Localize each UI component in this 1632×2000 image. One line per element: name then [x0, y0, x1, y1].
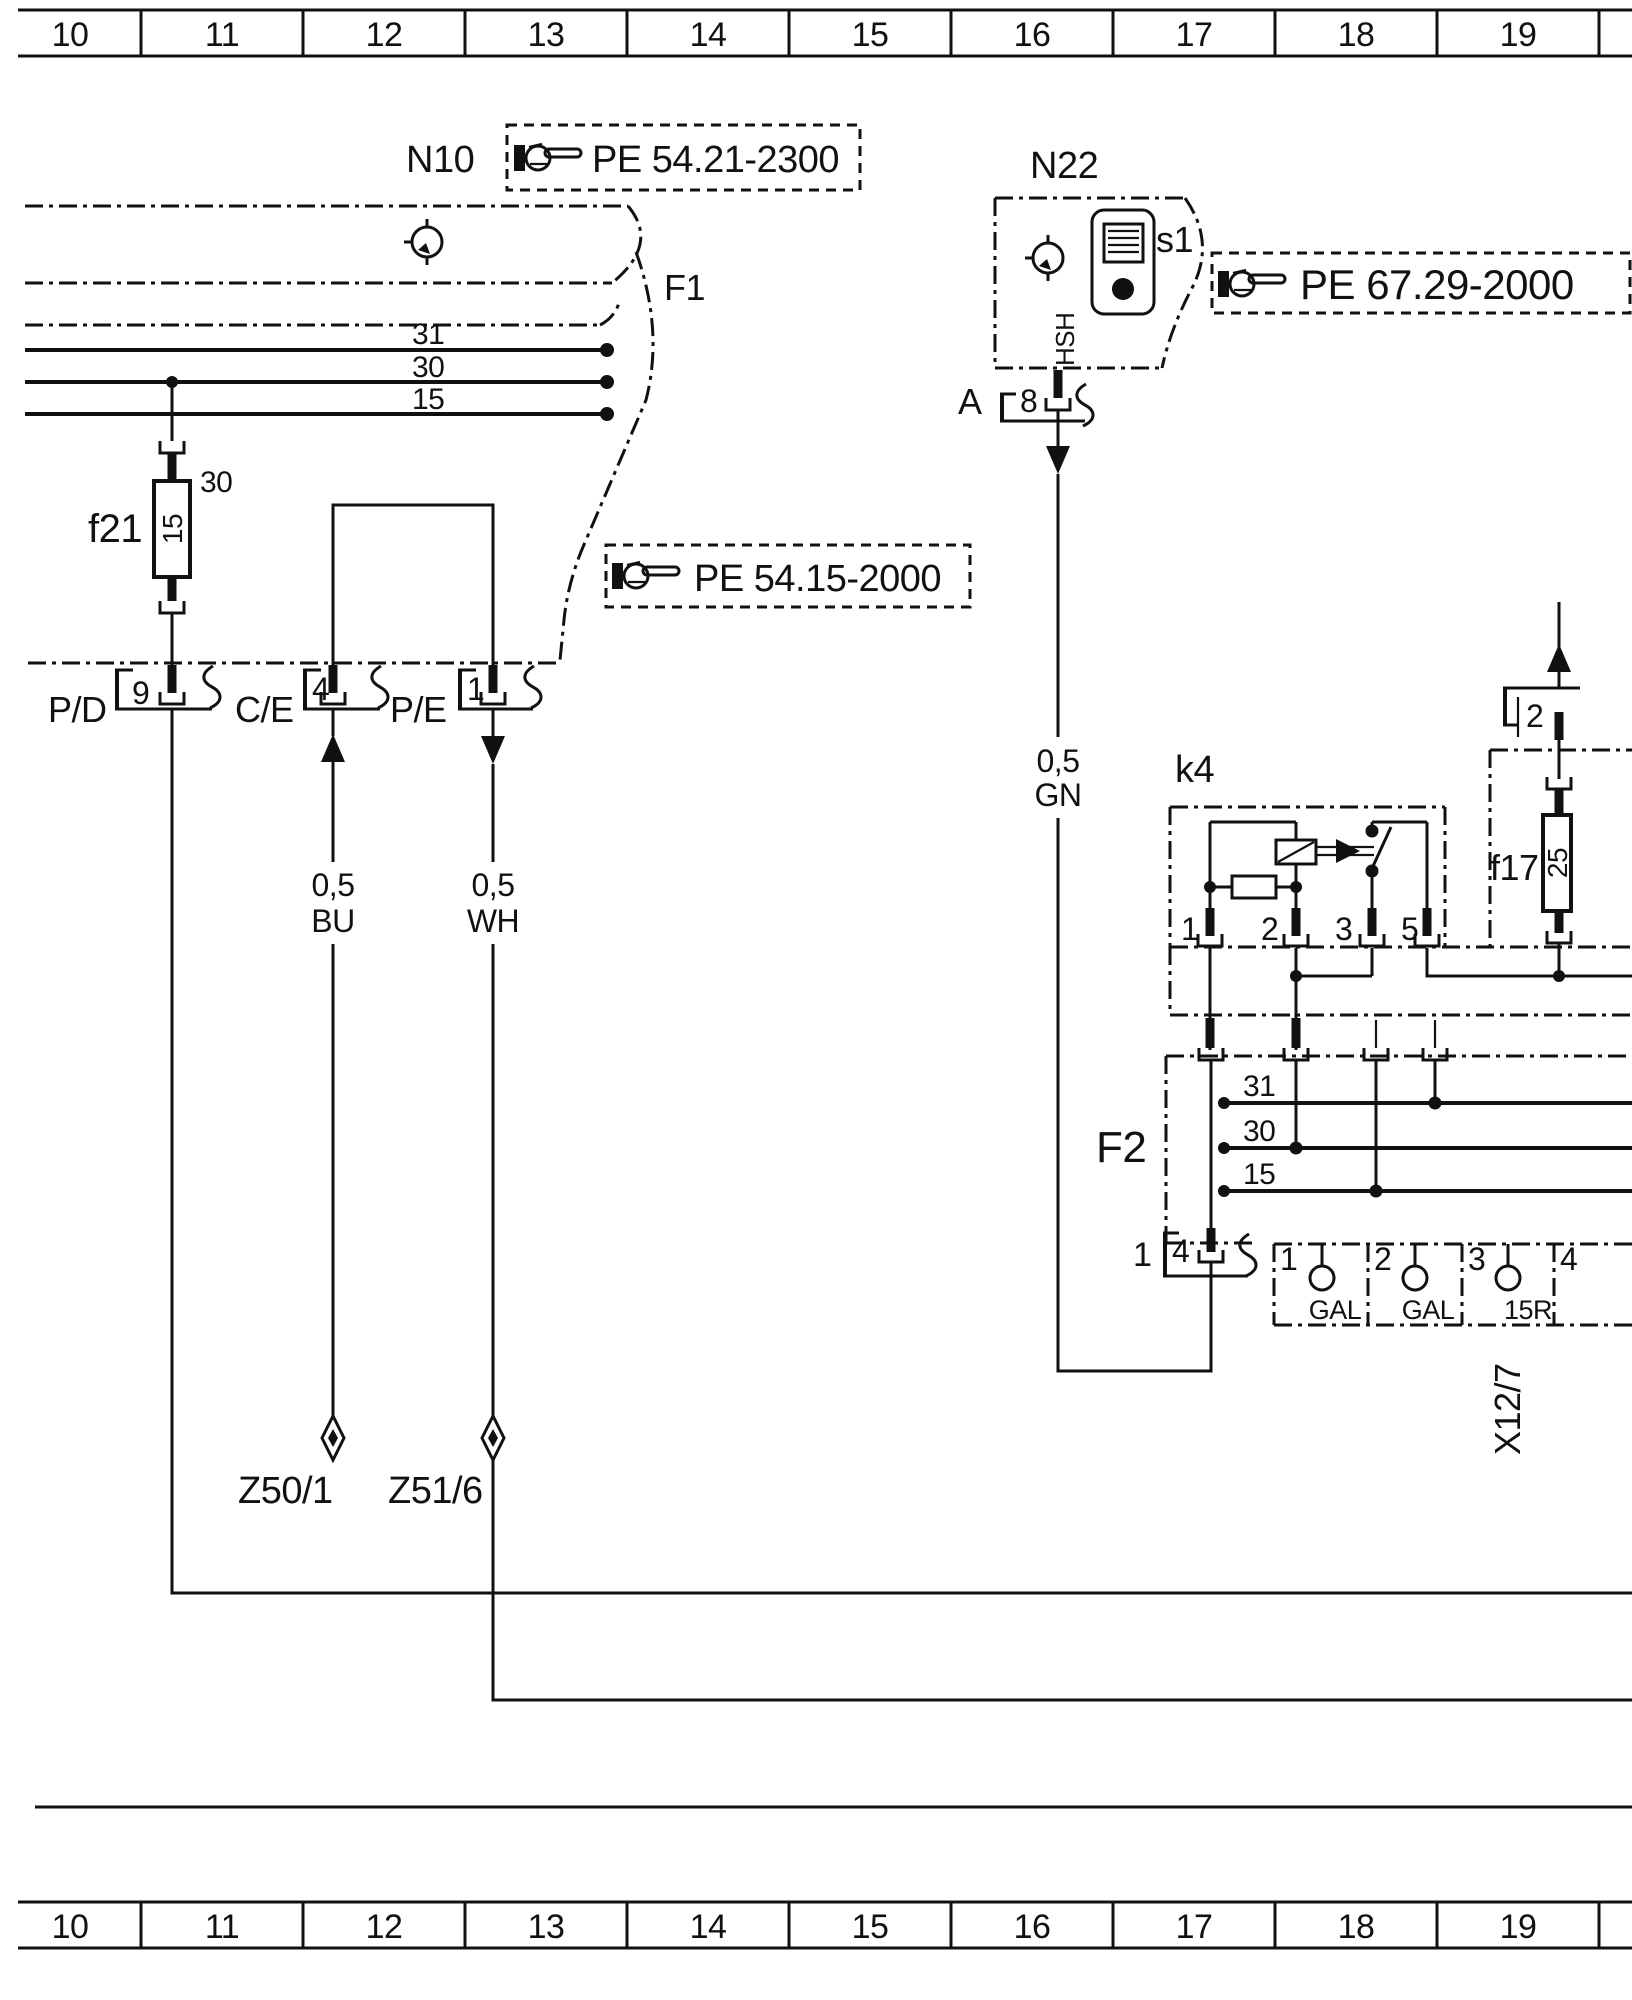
f2-label: F2	[1096, 1123, 1146, 1172]
splice-z51-6-label: Z51/6	[388, 1470, 483, 1512]
f2-bus-30-label: 30	[1243, 1115, 1275, 1148]
pointing-hand-icon	[514, 144, 581, 171]
x127-func-1: GAL	[1309, 1295, 1362, 1325]
wire-pd-run	[172, 709, 1632, 1593]
x127-pin-2: 2	[1374, 1241, 1391, 1277]
fuse-f21: 15 30 f21	[88, 382, 232, 692]
wire-bu: 0,5 BU Z50/1	[238, 709, 355, 1512]
separation-squiggle	[372, 666, 388, 708]
contact-icon	[1046, 398, 1070, 410]
relay-resistor	[1232, 876, 1276, 898]
fuse-box-f2: F2 31 30 15 1 4	[1096, 1018, 1632, 1276]
f21-rating: 15	[157, 514, 188, 544]
pe-label: P/E	[390, 689, 447, 730]
reference-pe-5415: PE 54.15-2000	[606, 545, 970, 607]
wire-bu-color: BU	[311, 903, 354, 939]
actuation-arrow	[1336, 839, 1360, 863]
ruler-cell: 16	[1014, 1908, 1051, 1946]
contact-icon	[1423, 1048, 1447, 1060]
ruler-cell: 11	[205, 16, 239, 54]
n22-device-icon	[1025, 235, 1063, 281]
reference-pe-6729: PE 67.29-2000	[1212, 253, 1630, 313]
contact-icon	[160, 692, 184, 704]
pd-label: P/D	[48, 689, 107, 730]
ruler-cell: 19	[1500, 1908, 1537, 1946]
bus-15-label: 15	[412, 383, 444, 416]
bottom-ruler: 10 11 12 13 14 15 16 17 18 19	[18, 1902, 1632, 1948]
f2-exit-outer: 1	[1133, 1236, 1151, 1274]
direction-arrow-down	[1046, 446, 1070, 474]
ruler-cell: 14	[690, 16, 727, 54]
socket-icon	[1496, 1266, 1520, 1290]
reference-pe-5421: PE 54.21-2300	[507, 125, 860, 190]
jumper-loop	[333, 505, 493, 665]
splice-z50-1-icon	[322, 1416, 344, 1460]
ruler-cell: 16	[1014, 16, 1051, 54]
separation-squiggle	[204, 666, 220, 708]
x127-pin-4: 4	[1560, 1241, 1577, 1277]
ruler-cell: 18	[1338, 1908, 1375, 1946]
ruler-cell: 19	[1500, 16, 1537, 54]
n10-label: N10	[406, 139, 474, 181]
f1-boundary	[560, 252, 653, 660]
x127-func-3: 15R	[1504, 1295, 1552, 1325]
wire-wh-size: 0,5	[472, 867, 515, 903]
ruler-cell: 13	[528, 16, 565, 54]
n10-right-brace	[612, 206, 641, 283]
splice-z51-6-icon	[482, 1416, 504, 1460]
power-rail-f1: F1 31 30 15	[25, 252, 705, 660]
a-label: A	[958, 381, 982, 422]
wire-wh-run	[493, 1460, 1632, 1700]
wire-gn-color: GN	[1035, 777, 1082, 813]
x127-label: X12/7	[1487, 1363, 1528, 1455]
bus-31-label: 31	[412, 318, 444, 351]
ruler-cell: 13	[528, 1908, 565, 1946]
bus-30-label: 30	[412, 351, 444, 384]
separation-squiggle	[525, 666, 541, 708]
contact-icon	[1364, 1048, 1388, 1060]
wire-bu-size: 0,5	[312, 867, 355, 903]
contact-icon	[160, 601, 184, 613]
wire-gn: 0,5 GN	[1035, 410, 1212, 1371]
f17-rating: 25	[1542, 848, 1573, 878]
direction-arrow-up	[1547, 644, 1571, 672]
ce-label: C/E	[235, 689, 294, 730]
f17-plug-pin: 2	[1526, 698, 1543, 734]
connector-row: P/D 9 C/E 4 P/E 1	[28, 663, 560, 730]
pe-6729-text: PE 67.29-2000	[1300, 261, 1574, 308]
ruler-cell: 14	[690, 1908, 727, 1946]
ruler-cell: 11	[205, 1908, 239, 1946]
connector-pe: P/E 1	[390, 665, 541, 730]
f2-bus-15-label: 15	[1243, 1158, 1275, 1191]
hsh-signal-label: HSH	[1050, 313, 1080, 366]
switch-s1	[1092, 210, 1154, 314]
socket-icon	[1403, 1266, 1427, 1290]
a-pin: 8	[1020, 383, 1037, 419]
wire-gn-size: 0,5	[1037, 743, 1080, 779]
ruler-cell: 18	[1338, 16, 1375, 54]
pointing-hand-icon	[612, 562, 679, 589]
pointing-hand-icon	[1218, 270, 1285, 297]
connector-a8: A 8	[958, 370, 1093, 426]
f2-exit-connector: 1 4	[1133, 1228, 1256, 1276]
f2-exit-pin: 4	[1172, 1233, 1189, 1269]
wire-wh-color: WH	[467, 903, 519, 939]
ruler-cell: 10	[52, 1908, 89, 1946]
wiring-diagram: 10 11 12 13 14 15 16 17 18 19 N10 PE 54.…	[0, 0, 1632, 2000]
f2-bus-31-label: 31	[1243, 1070, 1275, 1103]
top-ruler: 10 11 12 13 14 15 16 17 18 19	[18, 10, 1632, 56]
wiring-diagram-page: 10 11 12 13 14 15 16 17 18 19 N10 PE 54.…	[0, 0, 1632, 2000]
contact-icon	[481, 692, 505, 704]
k4-pin-1: 1	[1181, 911, 1198, 947]
heater-control-n22: N22 s1 HSH	[995, 145, 1202, 368]
direction-arrow-up	[321, 734, 345, 762]
n22-label: N22	[1030, 145, 1098, 187]
socket-icon	[1310, 1266, 1334, 1290]
k4-pin-3: 3	[1335, 911, 1352, 947]
ruler-cell: 15	[852, 1908, 889, 1946]
f21-label: f21	[88, 507, 142, 551]
ruler-cell: 17	[1176, 1908, 1213, 1946]
x127-pin-1: 1	[1280, 1241, 1297, 1277]
pd-pin: 9	[132, 675, 149, 711]
n10-device-icon	[404, 219, 442, 265]
connector-ce: C/E 4	[235, 665, 388, 730]
s1-label: s1	[1156, 219, 1193, 260]
ruler-cell: 12	[366, 1908, 403, 1946]
connector-pd: P/D 9	[48, 665, 220, 730]
pe-5415-text: PE 54.15-2000	[694, 558, 941, 600]
connector-x12-7: 1 2 3 4 GAL GAL 15R X12/7	[1274, 1241, 1632, 1455]
x127-pin-3: 3	[1468, 1241, 1485, 1277]
f17-label: f17	[1490, 847, 1539, 888]
direction-arrow-down	[481, 736, 505, 764]
f21-circuit: 30	[200, 466, 232, 499]
contact-icon	[160, 441, 184, 453]
ruler-cell: 17	[1176, 16, 1213, 54]
ruler-cell: 10	[52, 16, 89, 54]
pe-5421-text: PE 54.21-2300	[592, 139, 839, 181]
k4-pin-2: 2	[1261, 911, 1278, 947]
fuse-f17: 2 25 f17	[1490, 602, 1632, 982]
separation-squiggle	[1240, 1234, 1256, 1276]
ruler-cell: 15	[852, 16, 889, 54]
splice-z50-1-label: Z50/1	[238, 1470, 333, 1512]
k4-label: k4	[1175, 749, 1215, 791]
f1-label: F1	[664, 267, 705, 308]
ruler-cell: 12	[366, 16, 403, 54]
k4-pin-5: 5	[1401, 911, 1418, 947]
x127-func-2: GAL	[1402, 1295, 1455, 1325]
